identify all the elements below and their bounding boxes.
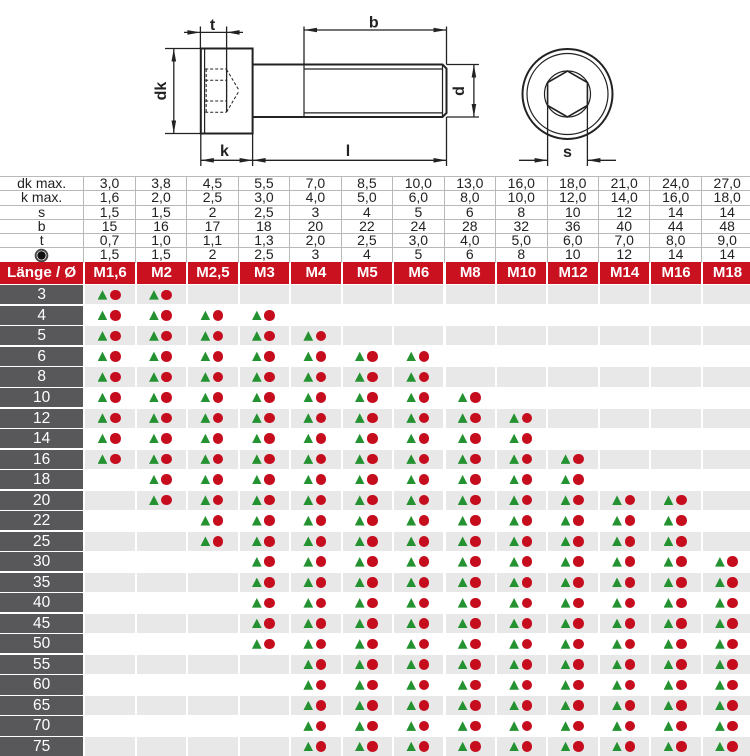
svg-text:l: l [346, 143, 350, 160]
svg-text:k: k [220, 143, 229, 160]
svg-text:t: t [210, 17, 216, 34]
svg-text:b: b [369, 15, 379, 32]
svg-text:s: s [563, 144, 572, 161]
svg-text:dk: dk [153, 82, 170, 101]
svg-text:d: d [451, 86, 468, 96]
